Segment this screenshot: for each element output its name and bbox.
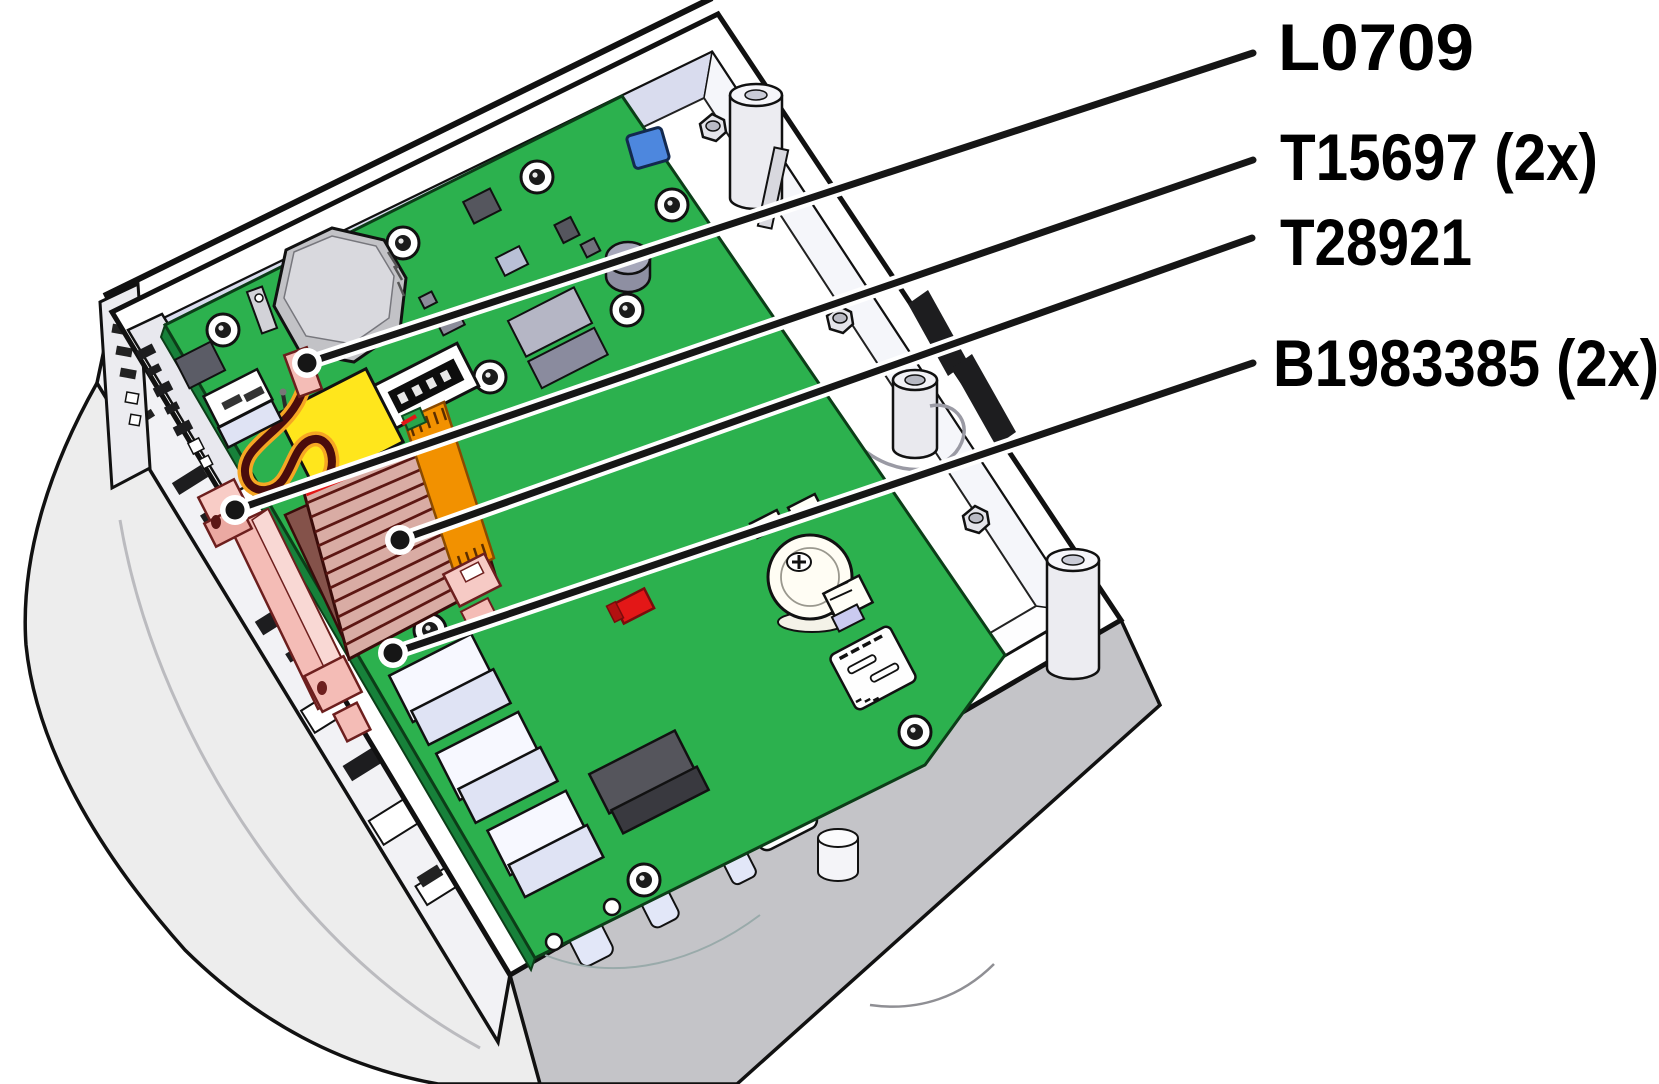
target-dot (226, 501, 245, 520)
part-label: L0709 (1278, 10, 1474, 84)
part-label: B1983385 (2x) (1273, 326, 1659, 400)
target-dot (298, 354, 317, 373)
part-label: T15697 (2x) (1280, 120, 1598, 194)
target-dot (391, 531, 410, 550)
skirt-foot-line (870, 964, 994, 1007)
device-illustration: L0709 T15697 (2x) T28921 B1983385 (2x) (0, 0, 1659, 1084)
part-label: T28921 (1280, 205, 1472, 279)
standoff-pillar-right (1047, 549, 1099, 679)
figure-canvas: L0709 T15697 (2x) T28921 B1983385 (2x) (0, 0, 1659, 1084)
target-dot (384, 644, 403, 663)
